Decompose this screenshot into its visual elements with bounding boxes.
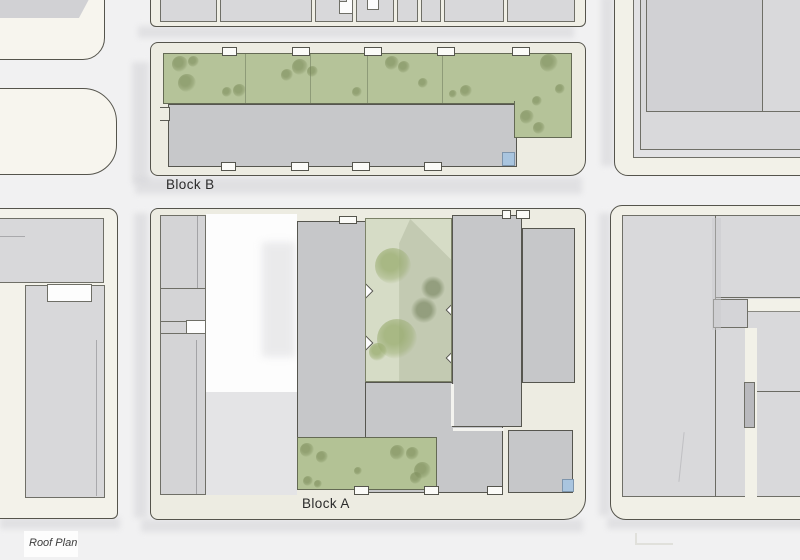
retained-building [160, 333, 206, 495]
context-building-inner [646, 0, 763, 112]
balcony-tab [291, 162, 309, 171]
shadow [601, 0, 614, 166]
balcony-tab [487, 486, 503, 495]
block-b-roof [168, 104, 517, 167]
retained-building [160, 288, 206, 322]
shadow [134, 213, 148, 518]
context-site-top-left-lower [0, 88, 117, 175]
roof-seam [0, 236, 25, 237]
courtyard-shadow [366, 219, 451, 381]
shadow [132, 62, 149, 184]
green-roof-seam [310, 54, 311, 103]
block-a-right-extension [522, 228, 575, 383]
balcony-tab [222, 47, 237, 56]
context-building [397, 0, 418, 22]
context-building [622, 215, 800, 497]
roof-plan-drawing: Block B Block A Roof Plan [0, 0, 800, 560]
block-a-label: Block A [302, 496, 350, 511]
block-a-left-wing [297, 221, 366, 438]
roof-smudge [712, 218, 721, 330]
retained-building [160, 215, 206, 289]
roof-seam [715, 297, 800, 298]
context-building [220, 0, 312, 22]
green-roof-seam [442, 54, 443, 103]
stair-arrow [365, 283, 373, 300]
block-b-skylight [502, 152, 515, 166]
context-building [444, 0, 504, 22]
roof-joint [453, 428, 504, 431]
roof-joint [451, 384, 454, 426]
block-b-green-roof-extension [514, 101, 572, 138]
balcony-tab [339, 216, 357, 224]
block-a-right-wing [452, 215, 522, 427]
balcony-tab [352, 162, 370, 171]
context-building [160, 0, 217, 22]
balcony-tab [502, 210, 511, 219]
stair-arrow [365, 335, 373, 352]
context-building [25, 285, 105, 498]
roof-seam [763, 111, 800, 112]
context-building [339, 0, 347, 2]
roof-seam [196, 340, 197, 494]
roof-seam [96, 340, 97, 496]
roof-cutout [339, 0, 353, 14]
block-a-courtyard [365, 218, 452, 382]
roof-step [160, 107, 170, 121]
shadow [262, 242, 295, 357]
roof-plan-title: Roof Plan [29, 537, 77, 549]
balcony-tab [364, 47, 382, 56]
street-marking [635, 533, 673, 545]
light-well-shaded [206, 392, 297, 495]
context-building [0, 218, 104, 283]
block-b-label: Block B [166, 177, 215, 192]
context-building [744, 382, 755, 428]
roof-cutout [367, 0, 379, 10]
balcony-tab [221, 162, 236, 171]
balcony-tab [354, 486, 369, 495]
block-a-skylight [562, 479, 574, 492]
roof-cutout [47, 284, 92, 302]
green-roof-seam [367, 54, 368, 103]
balcony-tab [424, 162, 442, 171]
context-building [507, 0, 575, 22]
shadow [138, 26, 574, 38]
shadow [141, 519, 583, 532]
roof-cutout [186, 320, 206, 334]
block-a-front-green-roof [297, 437, 437, 490]
balcony-tab [512, 47, 530, 56]
balcony-tab [424, 486, 439, 495]
balcony-tab [292, 47, 310, 56]
balcony-tab [516, 210, 530, 219]
roof-seam [757, 391, 800, 392]
roof-seam [197, 216, 198, 288]
balcony-tab [437, 47, 455, 56]
context-building [421, 0, 441, 22]
green-roof-seam [245, 54, 246, 103]
